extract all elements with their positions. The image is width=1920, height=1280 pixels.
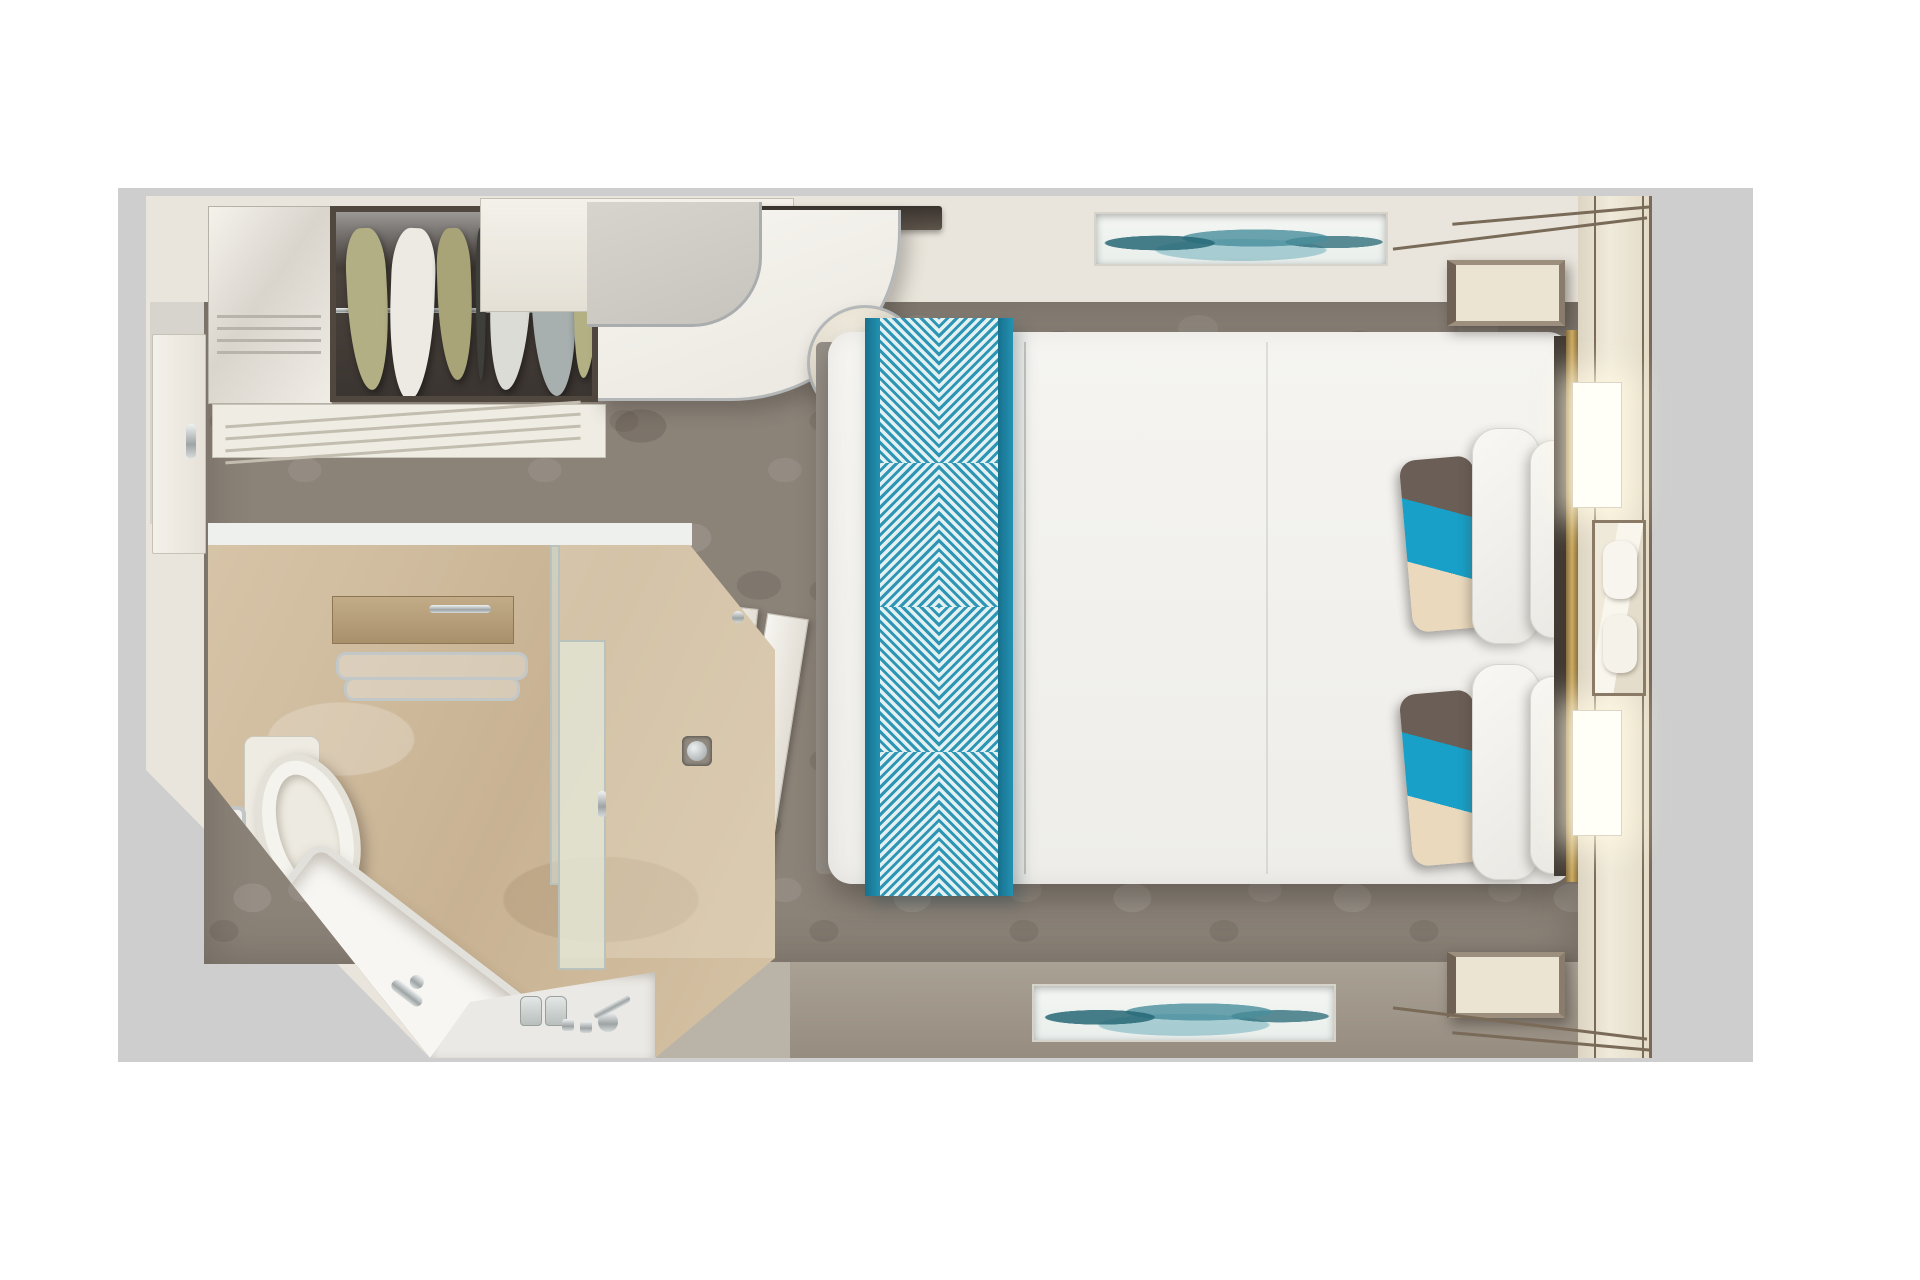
garment [435,227,474,380]
wooden-shelf [332,596,514,644]
nightstand-bottom [1447,952,1565,1018]
vent-line [217,315,321,318]
vent-line [217,327,321,330]
shower-head-icon [732,611,744,623]
bed [828,332,1572,884]
runner-border [998,318,1013,896]
sink-handle-icon [562,1019,574,1031]
shower-door-handle-icon [598,791,606,817]
floorplan-render [0,0,1920,1280]
duvet-seam [1266,342,1268,874]
artwork-top [1094,212,1388,266]
luggage-rack [212,404,606,458]
runner-border [865,318,880,896]
shower-drain [682,736,712,766]
sconce-top [1572,382,1622,508]
door-handle-icon [186,424,196,458]
duvet-seam [1024,342,1026,874]
sconce-bottom [1572,710,1622,836]
toiletry-bottle [520,996,542,1026]
runner-pattern [880,318,998,896]
vent-line [217,351,321,354]
towel-rack [336,652,528,680]
bathroom-wall [208,523,692,546]
drain-cover-icon [687,741,707,761]
shelf-handle-icon [429,605,491,613]
vent-line [217,339,321,342]
wardrobe-cabinet [208,206,332,404]
garment [387,227,437,400]
mirror-reflection [1603,541,1637,599]
sink-handle-icon [580,1021,592,1033]
mirror-reflection [1603,615,1637,673]
headboard-mirror [1592,520,1646,696]
bed-runner [865,318,1013,896]
headboard-gap [1554,336,1566,876]
towel-rack [344,677,520,701]
artwork-bottom [1032,984,1336,1042]
nightstand-top [1447,260,1565,326]
desk-cabinet [587,202,762,327]
entry-door [152,334,206,554]
